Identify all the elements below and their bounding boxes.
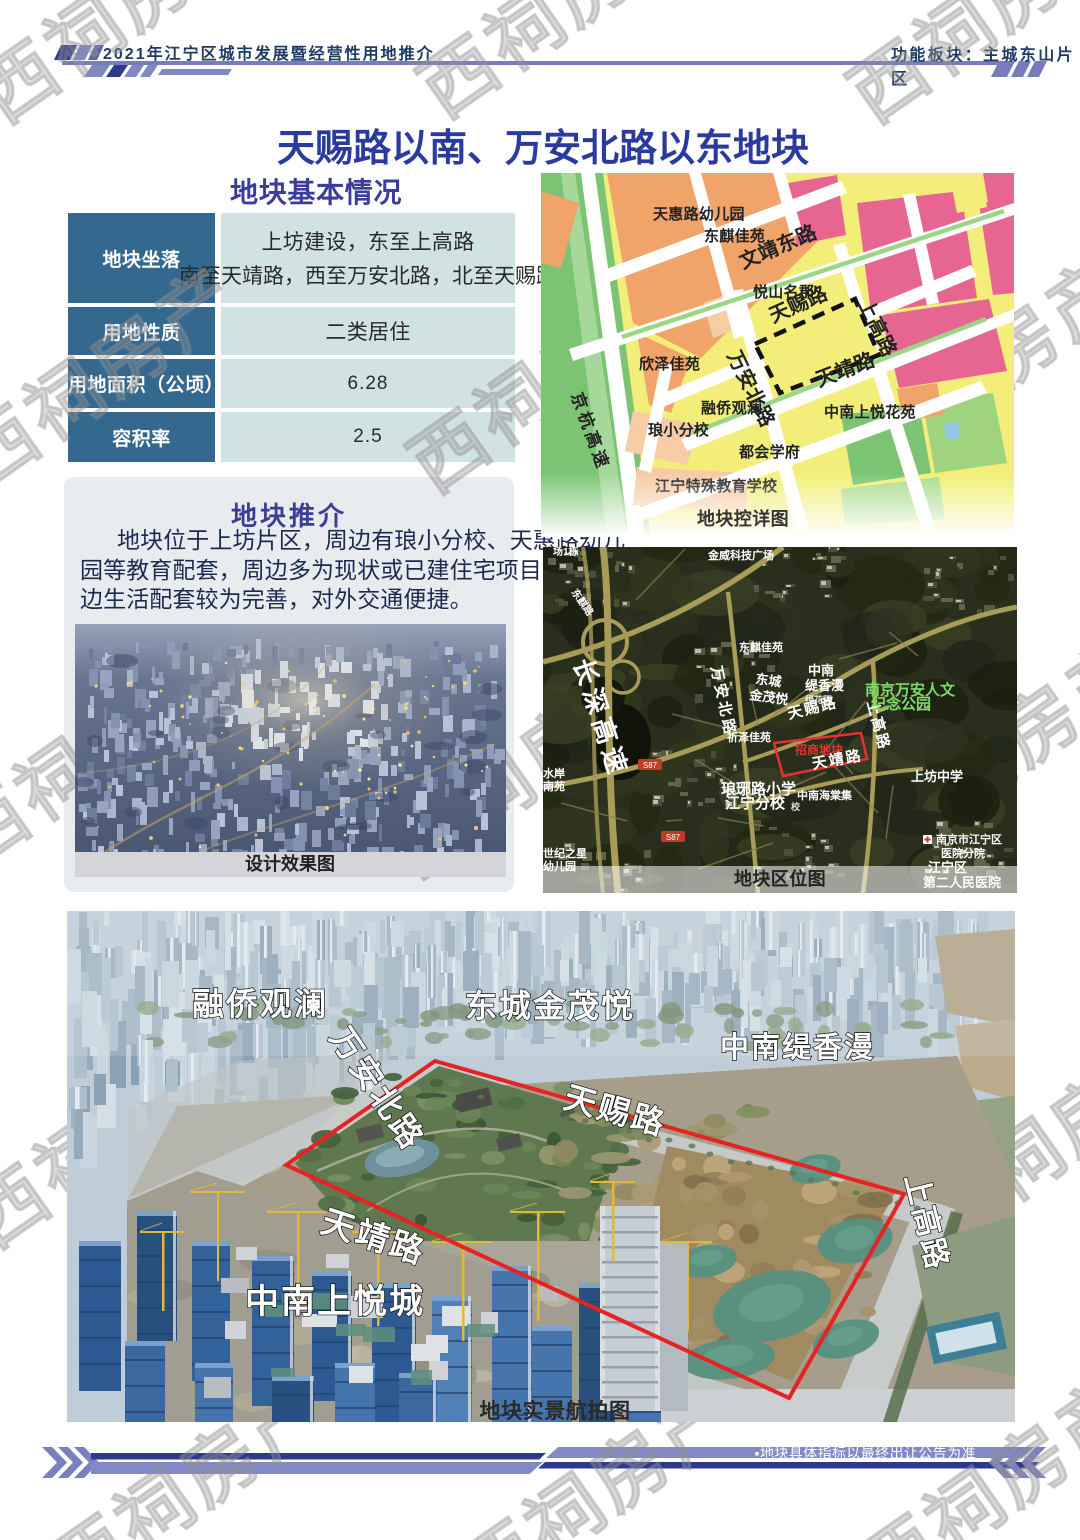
svg-text:融侨观澜: 融侨观澜: [701, 399, 762, 417]
svg-text:世纪之星: 世纪之星: [543, 846, 587, 860]
svg-text:校: 校: [791, 801, 801, 812]
svg-text:天惠路幼儿园: 天惠路幼儿园: [653, 205, 745, 223]
svg-text:南京市江宁区: 南京市江宁区: [936, 832, 1002, 846]
svg-text:东麒佳苑: 东麒佳苑: [704, 227, 765, 245]
svg-text:祈泽佳苑: 祈泽佳苑: [727, 730, 771, 744]
svg-text:医院分院: 医院分院: [941, 846, 985, 860]
svg-text:中南缇香漫: 中南缇香漫: [720, 1031, 875, 1064]
svg-text:东城金茂悦: 东城金茂悦: [465, 988, 635, 1024]
svg-text:场1栋: 场1栋: [553, 547, 579, 558]
svg-text:地块区位图: 地块区位图: [734, 868, 826, 889]
svg-text:上坊中学: 上坊中学: [911, 769, 963, 784]
svg-text:中南上悦城: 中南上悦城: [245, 1283, 425, 1321]
svg-text:中南: 中南: [808, 663, 834, 678]
svg-text:地块控详图: 地块控详图: [697, 508, 789, 529]
svg-text:都会学府: 都会学府: [738, 443, 800, 461]
svg-text:S87: S87: [643, 761, 658, 770]
svg-text:融侨观澜: 融侨观澜: [192, 986, 328, 1022]
svg-text:中南海棠集: 中南海棠集: [797, 788, 853, 802]
svg-text:江宁分校: 江宁分校: [725, 794, 786, 812]
svg-text:缇香漫: 缇香漫: [805, 678, 844, 693]
svg-text:S87: S87: [666, 833, 681, 842]
svg-text:中南上悦花苑: 中南上悦花苑: [824, 403, 916, 421]
svg-text:琅小分校: 琅小分校: [648, 421, 710, 439]
svg-text:设计效果图: 设计效果图: [245, 853, 335, 874]
svg-text:南苑: 南苑: [543, 779, 565, 793]
svg-text:东麒佳苑: 东麒佳苑: [739, 640, 783, 654]
svg-text:纪念公园: 纪念公园: [871, 695, 931, 713]
svg-text:金威科技广场: 金威科技广场: [707, 548, 774, 562]
svg-text:地块实景航拍图: 地块实景航拍图: [479, 1399, 630, 1422]
svg-text:欣泽佳苑: 欣泽佳苑: [639, 355, 700, 373]
svg-text:水岸: 水岸: [543, 766, 565, 780]
